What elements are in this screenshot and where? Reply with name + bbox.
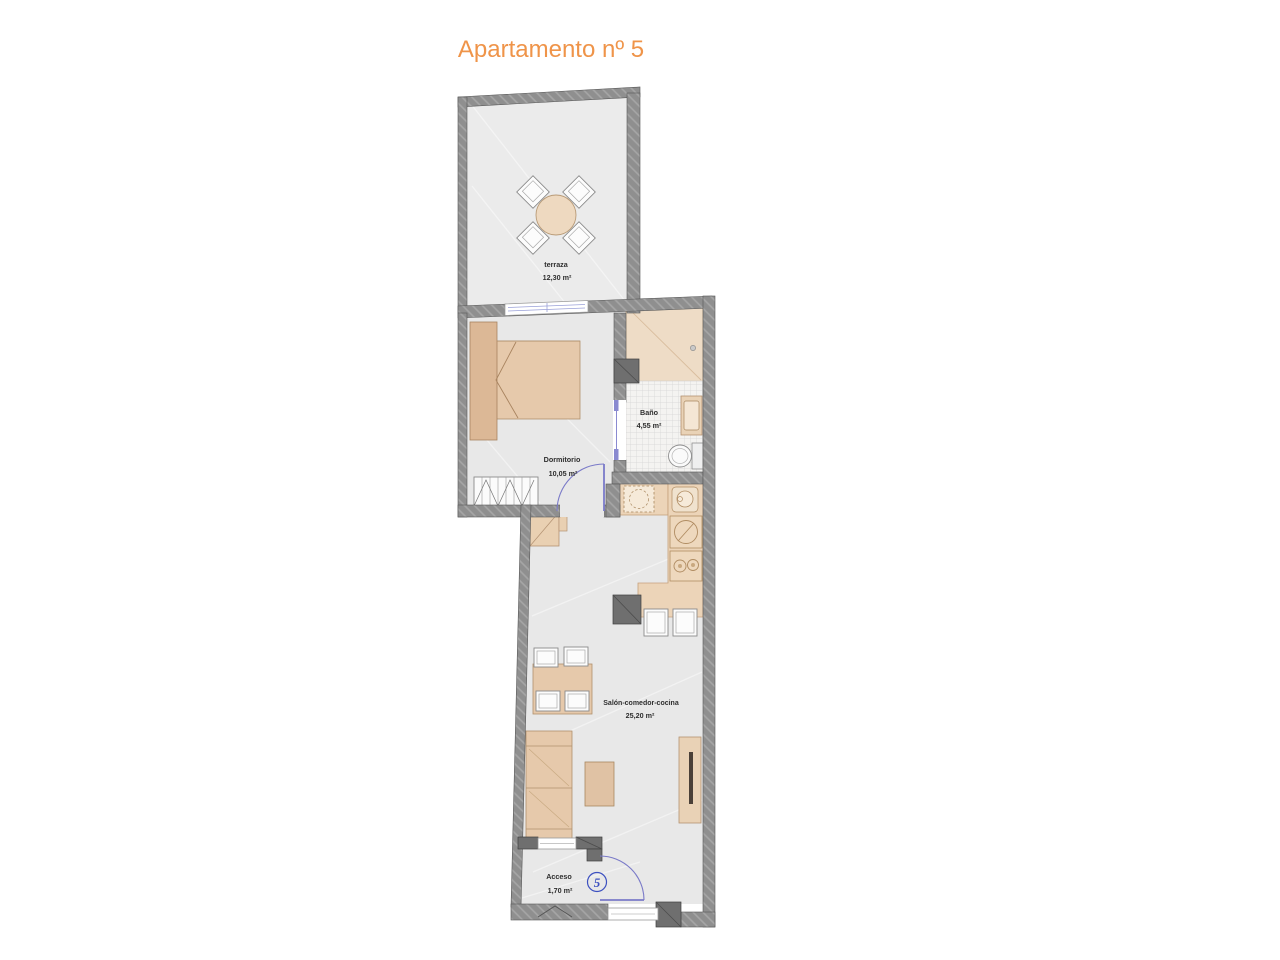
terrace-right-wall	[627, 93, 640, 313]
page-title: Apartamento nº 5	[458, 36, 644, 63]
washbasin-vanity	[681, 396, 702, 435]
toilet-tank	[692, 443, 703, 469]
bano-area: 4,55 m²	[637, 421, 662, 430]
appliance-dashed-icon	[624, 486, 654, 512]
acceso-label: Acceso	[546, 872, 572, 881]
terrace-table-icon	[536, 195, 576, 235]
bedroom-door-opening	[560, 503, 604, 517]
detail-line	[677, 491, 693, 507]
acceso-area: 1,70 m²	[548, 886, 573, 895]
wardrobe	[474, 477, 538, 508]
right-wall	[703, 296, 715, 927]
salon-area: 25,20 m²	[626, 711, 655, 720]
entry-bottom-wall	[511, 904, 608, 920]
dormitorio-label: Dormitorio	[544, 455, 581, 464]
salon-label: Salón-comedor-cocina	[603, 700, 679, 707]
bathroom-bottom-wall	[612, 472, 703, 484]
bottom-right-wall	[681, 912, 715, 927]
door-jamb-mark	[614, 449, 619, 460]
tv-screen	[689, 752, 693, 804]
terraza-label: terraza	[544, 260, 569, 269]
hall-wall-stub	[587, 849, 602, 861]
sofa	[526, 731, 572, 842]
stool-icon	[673, 609, 697, 636]
bedroom-bottom-wall	[458, 505, 560, 517]
bedroom-left-wall	[458, 313, 467, 517]
coffee-table-icon	[585, 762, 614, 806]
shower-drain-icon	[690, 345, 695, 350]
detail-line	[678, 564, 682, 568]
terrace-left-wall	[458, 97, 467, 313]
dormitorio-area: 10,05 m²	[549, 469, 578, 478]
terraza-area: 12,30 m²	[543, 273, 572, 282]
hall-wall-stub	[518, 837, 538, 849]
kitchen-connector-wall	[606, 484, 620, 517]
floor-plan-drawing: Apartamento nº 5	[0, 0, 1280, 960]
badge-number: 5	[594, 875, 601, 890]
headboard	[470, 322, 497, 440]
door-jamb-mark	[614, 400, 619, 411]
mattress	[496, 341, 580, 419]
tv-unit	[679, 737, 701, 823]
detail-line	[691, 563, 695, 567]
bano-label: Baño	[640, 408, 659, 417]
bedroom-bath-wall	[614, 313, 626, 402]
floor-plan-page: Apartamento nº 5	[0, 0, 1280, 960]
toilet	[669, 443, 704, 469]
basin	[684, 401, 699, 430]
stool-icon	[644, 609, 668, 636]
